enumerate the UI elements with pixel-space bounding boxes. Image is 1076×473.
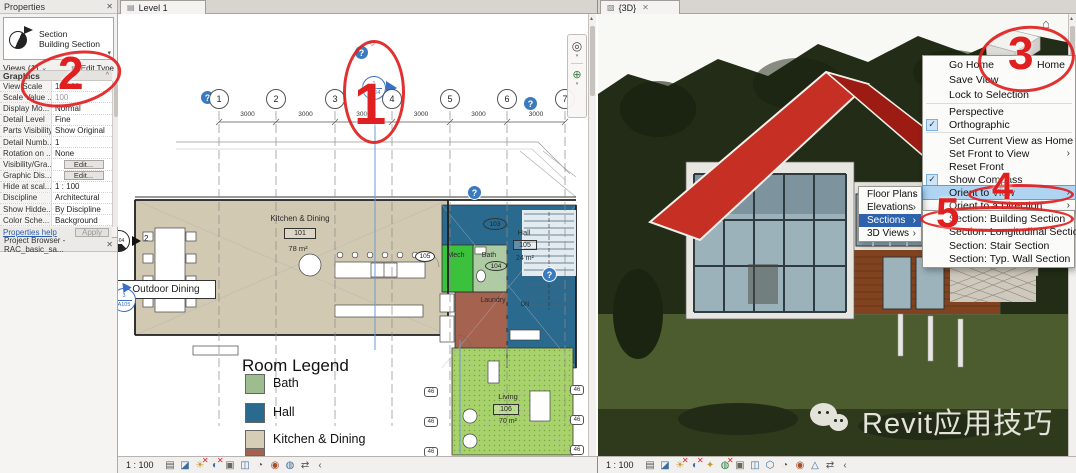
menu-item-section-typ-wall-section[interactable]: Section: Typ. Wall Section <box>923 253 1074 267</box>
property-row-color-sche[interactable]: Color Sche...Background <box>0 215 112 226</box>
property-label: Visibility/Gra... <box>0 159 52 169</box>
section-marker-arrow-icon <box>132 236 141 246</box>
dimension-label: 3000 <box>294 111 318 118</box>
disabled-x-icon: ✕ <box>727 456 734 465</box>
type-name-line1: Section <box>39 29 100 39</box>
submenu-arrow-icon: › <box>1067 148 1070 159</box>
scroll-up-icon[interactable]: ▴ <box>590 15 593 22</box>
door-tag[interactable]: 105 <box>415 251 435 262</box>
scroll-up-icon[interactable]: ▴ <box>1070 15 1073 22</box>
properties-panel: Properties ✕ Section Building Section ▾ … <box>0 0 118 238</box>
reveal-hidden-icon[interactable]: ◉ <box>794 459 807 472</box>
property-value[interactable]: By Discipline <box>52 204 112 214</box>
tab-level-1[interactable]: ▤ Level 1 <box>120 0 206 14</box>
plan-scrollbar[interactable]: ▴ <box>588 14 596 456</box>
temporary-hide-icon[interactable]: ◔ <box>779 459 792 472</box>
property-value[interactable]: 1 <box>52 137 112 147</box>
disabled-x-icon: ✕ <box>217 456 224 465</box>
menu-separator <box>926 132 1072 133</box>
window-tag[interactable]: 46 <box>570 415 584 425</box>
menu-item-set-front-to-view[interactable]: Set Front to View› <box>923 147 1075 160</box>
project-browser-panel: Project Browser - RAC_basic_sa... ✕ −Vie… <box>0 238 118 473</box>
annotation-number-3: 3 <box>1008 30 1034 76</box>
grid-bubble-1[interactable]: 1 <box>209 89 229 109</box>
steering-wheel-icon[interactable]: ◎ <box>572 39 582 53</box>
legend-swatch-bath <box>245 374 265 394</box>
property-label: Hide at scal... <box>0 182 52 192</box>
property-label: Detail Level <box>0 115 52 125</box>
room-tag-hall[interactable]: 105 <box>513 240 537 250</box>
window-tag[interactable]: 46 <box>570 385 584 395</box>
property-value[interactable]: Edit... <box>52 159 112 169</box>
checkmark-icon: ✓ <box>926 119 938 131</box>
3d-view-controls: ▤◪☀✕◐✕✦◍✕▣◫⬡◔◉△⇄‹ <box>644 459 854 472</box>
property-value[interactable]: Show Original <box>52 126 112 136</box>
grid-bubble-3[interactable]: 3 <box>325 89 345 109</box>
property-value[interactable]: None <box>52 148 112 158</box>
analysis-display-icon[interactable]: △ <box>809 459 822 472</box>
section-marker-number: 2 <box>144 234 148 243</box>
help-icon[interactable]: ? <box>543 268 556 281</box>
room-label-laundry: Laundry <box>470 297 516 304</box>
crop-view-icon[interactable]: ▣ <box>734 459 747 472</box>
sun-path-icon[interactable]: ☀✕ <box>674 459 687 472</box>
room-label-hall: Hall <box>504 228 544 237</box>
properties-title: Properties <box>4 2 45 12</box>
3d-tabstrip: ▧ {3D} ✕ <box>598 0 1076 14</box>
annotation-circle-4 <box>968 184 1074 205</box>
legend-swatch-hall <box>245 403 265 423</box>
visual-style-icon[interactable]: ◪ <box>179 459 192 472</box>
annotation-number-4: 4 <box>992 168 1013 206</box>
project-browser-title: Project Browser - RAC_basic_sa... <box>4 236 106 254</box>
properties-header[interactable]: Properties ✕ <box>0 0 117 14</box>
help-icon[interactable]: ? <box>524 97 537 110</box>
property-value[interactable]: Background <box>52 215 112 225</box>
property-label: Discipline <box>0 193 52 203</box>
project-browser-header[interactable]: Project Browser - RAC_basic_sa... ✕ <box>0 238 117 252</box>
close-icon[interactable]: ✕ <box>642 3 649 12</box>
menu-item-floor-plans[interactable]: Floor Plans› <box>859 188 921 201</box>
room-legend-title: Room Legend <box>242 356 349 376</box>
annotation-number-2: 2 <box>58 50 84 96</box>
temporary-hide-icon[interactable]: ◔ <box>254 459 267 472</box>
property-row-show-hidde[interactable]: Show Hidde...By Discipline <box>0 204 112 215</box>
property-label: Detail Numb... <box>0 137 52 147</box>
submenu-arrow-icon: › <box>913 189 916 200</box>
window-tag[interactable]: 46 <box>424 417 438 427</box>
dimension-label: 3000 <box>236 111 260 118</box>
plan-tab-icon: ▤ <box>127 3 135 12</box>
legend-label-bath: Bath <box>273 376 299 390</box>
window-tag[interactable]: 46 <box>424 387 438 397</box>
menu-item-section-stair-section[interactable]: Section: Stair Section <box>923 239 1074 253</box>
annotation-number-5: 5 <box>936 192 959 234</box>
sun-path-icon[interactable]: ☀✕ <box>194 459 207 472</box>
menu-item-3d-views[interactable]: 3D Views› <box>859 227 921 240</box>
edit-button[interactable]: Edit... <box>64 160 104 169</box>
annotation-number-1: 1 <box>354 76 386 134</box>
revit-window: Properties ✕ Section Building Section ▾ … <box>0 0 1076 473</box>
room-label-living: Living <box>488 392 528 401</box>
room-label-kitchen: Kitchen & Dining <box>240 214 360 223</box>
tab-3d[interactable]: ▧ {3D} ✕ <box>600 0 680 14</box>
submenu-arrow-icon: › <box>913 215 916 226</box>
submenu-arrow-icon: › <box>913 202 916 213</box>
detail-level-icon[interactable]: ▤ <box>164 459 177 472</box>
shadows-icon[interactable]: ◐✕ <box>689 459 702 472</box>
menu-item-sections[interactable]: Sections› <box>859 214 921 227</box>
grid-bubble-2[interactable]: 2 <box>266 89 286 109</box>
room-label-mech: Mech <box>440 252 472 259</box>
property-row-visibility-gra[interactable]: Visibility/Gra...Edit... <box>0 159 112 170</box>
room-label-bath: Bath <box>474 252 504 259</box>
property-row-hide-at-scal[interactable]: Hide at scal...1 : 100 <box>0 182 112 193</box>
plan-view-control-bar: 1 : 100 ▤◪☀✕◐✕▣◫◔◉◍⇄‹ <box>118 456 597 473</box>
dimension-label: 3000 <box>467 111 491 118</box>
property-row-discipline[interactable]: DisciplineArchitectural <box>0 193 112 204</box>
expand-bar-icon[interactable]: ‹ <box>314 459 327 472</box>
property-row-detail-level[interactable]: Detail LevelFine <box>0 115 112 126</box>
room-area-kitchen: 78 m² <box>268 244 328 253</box>
reveal-hidden-icon[interactable]: ◉ <box>269 459 282 472</box>
3d-view-control-bar: 1 : 100 ▤◪☀✕◐✕✦◍✕▣◫⬡◔◉△⇄‹ <box>598 456 1076 473</box>
legend-label-hall: Hall <box>273 405 295 419</box>
room-area-living: 70 m² <box>490 418 526 425</box>
stairs-dn-label: DN <box>516 302 534 308</box>
property-row-rotation-on[interactable]: Rotation on ...None <box>0 148 112 159</box>
property-value[interactable]: Fine <box>52 115 112 125</box>
room-tag-bath[interactable]: 104 <box>485 261 507 271</box>
orient-to-view-submenu: Floor Plans›Elevations›Sections›3D Views… <box>858 186 922 242</box>
grid-bubble-5[interactable]: 5 <box>440 89 460 109</box>
disabled-x-icon: ✕ <box>202 456 209 465</box>
legend-swatch-clipped <box>245 448 265 456</box>
temporary-properties-icon[interactable]: ◍ <box>284 459 297 472</box>
property-label: Rotation on ... <box>0 148 52 158</box>
dimension-label: 3000 <box>524 111 548 118</box>
3d-scale[interactable]: 1 : 100 <box>606 460 634 470</box>
expand-bar-icon[interactable]: ‹ <box>839 459 852 472</box>
menu-item-set-current-view-as-home[interactable]: Set Current View as Home <box>923 134 1075 147</box>
property-value[interactable]: 1 : 100 <box>52 182 112 192</box>
room-tag-living[interactable]: 106 <box>493 404 519 415</box>
wechat-icon <box>810 403 852 439</box>
property-value[interactable]: Edit... <box>52 171 112 181</box>
crop-view-icon[interactable]: ▣ <box>224 459 237 472</box>
submenu-arrow-icon: › <box>913 228 916 239</box>
show-crop-icon[interactable]: ◫ <box>749 459 762 472</box>
window-tag[interactable]: 46 <box>424 447 438 456</box>
show-constraints-icon[interactable]: ⇄ <box>824 459 837 472</box>
property-row-parts-visibility[interactable]: Parts VisibilityShow Original <box>0 126 112 137</box>
close-icon[interactable]: ✕ <box>106 240 113 249</box>
property-label: Graphic Dis... <box>0 171 52 181</box>
dimension-label: 3000 <box>409 111 433 118</box>
property-value[interactable]: Architectural <box>52 193 112 203</box>
detail-level-icon[interactable]: ▤ <box>644 459 657 472</box>
checkmark-icon: ✓ <box>926 174 938 186</box>
menu-item-lock-to-selection[interactable]: Lock to Selection <box>923 87 1075 102</box>
property-label: Show Hidde... <box>0 204 52 214</box>
show-constraints-icon[interactable]: ⇄ <box>299 459 312 472</box>
legend-swatch-kitchen-dining <box>245 430 265 450</box>
window-tag[interactable]: 46 <box>570 445 584 455</box>
legend-label-kitchen-dining: Kitchen & Dining <box>273 432 365 446</box>
menu-separator <box>926 103 1072 104</box>
3d-tab-icon: ▧ <box>607 3 615 12</box>
section-type-icon <box>9 26 35 52</box>
room-area-hall: 24 m² <box>506 255 544 262</box>
property-row-graphic-dis[interactable]: Graphic Dis...Edit... <box>0 171 112 182</box>
watermark-text: Revit应用技巧 <box>862 400 1053 442</box>
property-label: Color Sche... <box>0 215 52 225</box>
shadows-icon[interactable]: ◐✕ <box>209 459 222 472</box>
sun-settings-icon[interactable]: ✦ <box>704 459 717 472</box>
edit-button[interactable]: Edit... <box>64 171 104 180</box>
help-icon[interactable]: ? <box>468 186 481 199</box>
plan-navigation-bar[interactable]: ◎▾ ⊕▾ <box>567 34 587 118</box>
grid-bubble-6[interactable]: 6 <box>497 89 517 109</box>
disabled-x-icon: ✕ <box>697 456 704 465</box>
plan-view-controls: ▤◪☀✕◐✕▣◫◔◉◍⇄‹ <box>164 459 329 472</box>
disabled-x-icon: ✕ <box>682 456 689 465</box>
menu-item-perspective[interactable]: Perspective <box>923 105 1075 118</box>
plan-tabstrip: ▤ Level 1 <box>118 0 597 14</box>
close-icon[interactable]: ✕ <box>106 2 113 11</box>
property-label: Parts Visibility <box>0 126 52 136</box>
watermark: Revit应用技巧 <box>810 400 1053 442</box>
visual-style-icon[interactable]: ◪ <box>659 459 672 472</box>
rendering-icon[interactable]: ◍✕ <box>719 459 732 472</box>
property-row-detail-numb[interactable]: Detail Numb...1 <box>0 137 112 148</box>
room-tag-kitchen[interactable]: 101 <box>284 228 316 239</box>
menu-item-orthographic[interactable]: ✓Orthographic <box>923 118 1075 131</box>
show-crop-icon[interactable]: ◫ <box>239 459 252 472</box>
plan-scale[interactable]: 1 : 100 <box>126 460 154 470</box>
zoom-icon[interactable]: ⊕ <box>572 68 581 81</box>
menu-item-elevations[interactable]: Elevations› <box>859 201 921 214</box>
lock-orientation-icon[interactable]: ⬡ <box>764 459 777 472</box>
